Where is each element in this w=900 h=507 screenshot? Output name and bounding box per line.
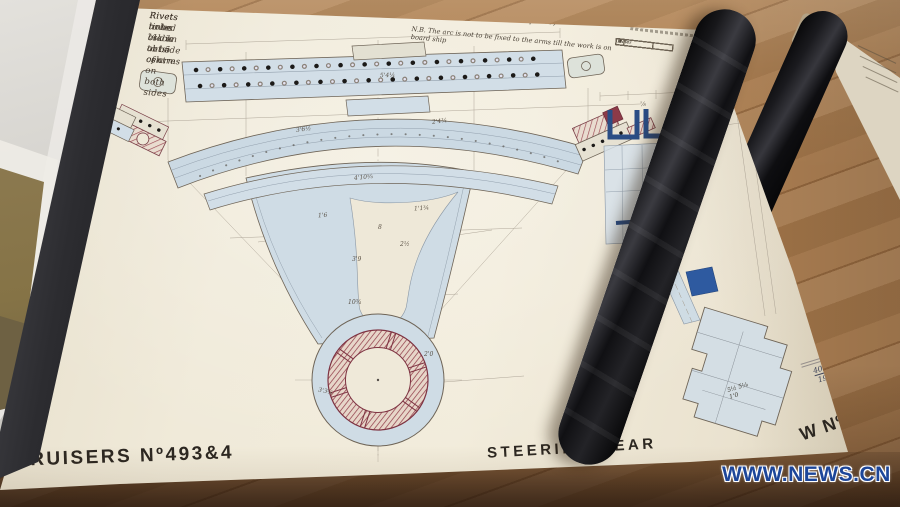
dimension-label: 1'6 (318, 212, 328, 220)
photo-scene: Rivet holes ⅞ dia abt 5 centres Rivets t… (0, 0, 900, 507)
news-watermark: WWW.NEWS.CN (722, 463, 891, 487)
dimension-label: 2'0 (424, 351, 433, 358)
dimension-label: 5'4¼ (380, 72, 395, 80)
dimension-label: 3'9 (352, 256, 361, 263)
dimension-label: 1'1¾ (414, 204, 430, 212)
hub-block-section (673, 307, 802, 440)
dimension-label: 10¾ (348, 299, 361, 306)
hub-section (312, 314, 444, 446)
dimension-label: 8 (378, 224, 382, 231)
quadrant-beam-plan (139, 42, 605, 116)
dimension-label: 2½ (400, 241, 410, 248)
dimension-label: ⅞ (640, 101, 646, 108)
